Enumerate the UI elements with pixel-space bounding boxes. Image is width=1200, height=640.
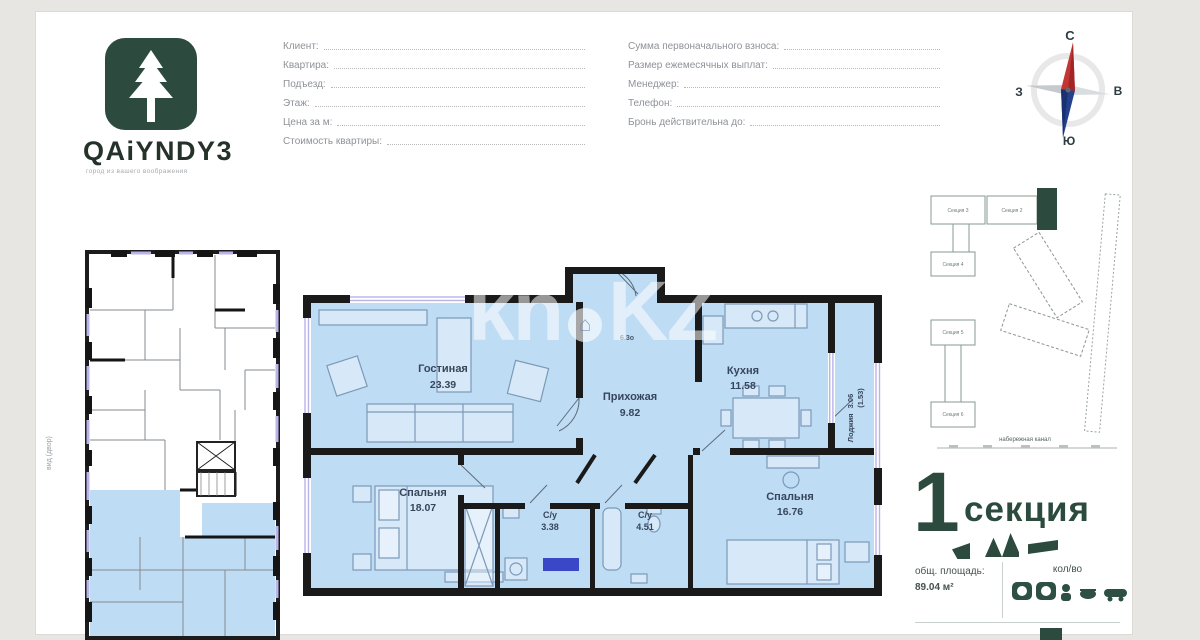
field-label: Цена за м: [283,117,332,128]
fill-in-line [684,79,940,88]
field-label: Стоимость квартиры: [283,136,382,147]
room-area-hall: 9.82 [620,407,641,419]
section-label: Секция 4 [942,262,963,268]
highlighted-section-block [1037,188,1057,230]
section-label: Секция 2 [1001,208,1022,214]
form-row: Этаж: [283,90,585,109]
floor-overview-plan [85,250,280,640]
field-label: Сумма первоначального взноса: [628,41,779,52]
form-right-column: Сумма первоначального взноса: Размер еже… [628,33,940,128]
section-label: Секция 3 [947,208,968,214]
loggia-area: 3.06 [846,394,855,409]
fill-in-line [331,79,585,88]
field-label: Подъезд: [283,79,326,90]
room-area-bath1: 3.38 [541,522,559,532]
form-row: Квартира: [283,52,585,71]
section-number: 1 [913,460,960,544]
road-line [937,445,1117,448]
field-label: Бронь действительна до: [628,117,745,128]
brand-name: QAiYNDY3 [83,136,233,167]
room-icon [1036,582,1056,600]
room-label-bath2: С/у [638,510,652,520]
compass-rose: С В З Ю [1012,26,1124,146]
section-word: секция [964,490,1090,530]
field-label: Менеджер: [628,79,679,90]
info-divider-horizontal [915,622,1120,623]
fill-in-line [324,41,585,50]
fill-in-line [784,41,940,50]
fill-in-line [337,117,585,126]
compass-north-label: С [1065,28,1075,43]
form-row: Размер ежемесячных выплат: [628,52,940,71]
form-row: Бронь действительна до: [628,109,940,128]
room-label-living: Гостиная [418,363,468,375]
fill-in-line [387,136,585,145]
blue-fixture-badge [543,558,579,571]
area-value: 89.04 м² [915,582,954,593]
room-area-bedroom1: 18.07 [410,502,436,514]
field-label: Этаж: [283,98,310,109]
form-row: Сумма первоначального взноса: [628,33,940,52]
room-label-hall: Прихожая [603,391,657,403]
room-label-bath1: С/у [543,510,557,520]
bath-icon [1080,589,1096,599]
street-side-note: вид (двор) [46,436,53,470]
form-row: Телефон: [628,90,940,109]
form-row: Подъезд: [283,71,585,90]
plan-sheet: QAiYNDY3 город из вашего воображения Кли… [0,0,1200,640]
info-divider-vertical [1002,562,1003,618]
site-plan-caption: набережная канал [999,437,1051,443]
form-row: Клиент: [283,33,585,52]
fill-in-line [315,98,585,107]
overview-core [197,442,235,496]
compass-south-label: Ю [1063,134,1075,146]
field-label: Размер ежемесячных выплат: [628,60,768,71]
field-label: Телефон: [628,98,672,109]
svg-text:Лоджия 3.06: Лоджия 3.06 [846,394,855,443]
room-label-bedroom1: Спальня [399,487,447,499]
loggia-name: Лоджия [846,413,855,442]
room-area-bedroom2: 16.76 [777,506,803,518]
fill-in-line [677,98,940,107]
fill-in-line [334,60,585,69]
apartment-floor-plan: Гостиная 23.39 Прихожая 9.82 Кухня 11.58… [295,258,895,605]
room-area-kitchen: 11.58 [730,380,756,392]
compass-needles [1021,38,1115,142]
room-area-bath2: 4.51 [636,522,654,532]
fill-in-line [773,60,940,69]
form-row: Цена за м: [283,109,585,128]
brand-tagline: город из вашего воображения [86,168,188,175]
room-label-kitchen: Кухня [727,365,759,377]
site-plan-labels: Секция 3 Секция 2 Секция 4 Секция 5 Секц… [942,208,1051,443]
compass-west-label: З [1015,85,1023,99]
section-label: Секция 5 [942,330,963,336]
room-label-bedroom2: Спальня [766,491,814,503]
quantity-label: кол/во [1015,564,1120,575]
loggia-area-reduced: (1.53) [856,388,865,408]
field-label: Квартира: [283,60,329,71]
feature-icons-row [1012,580,1130,604]
brand-logo [103,36,199,136]
field-label: Клиент: [283,41,319,52]
compass-east-label: В [1114,84,1123,98]
room-area-living: 23.39 [430,379,456,391]
section-label: Секция 6 [942,412,963,418]
form-row: Стоимость квартиры: [283,128,585,147]
person-icon [1061,584,1071,601]
form-left-column: Клиент: Квартира: Подъезд: Этаж: Цена за… [283,33,585,147]
car-icon [1104,589,1127,602]
next-section-block-cut [1040,628,1062,640]
site-plan-buildings [931,194,1120,432]
form-row: Менеджер: [628,71,940,90]
site-plan: Секция 3 Секция 2 Секция 4 Секция 5 Секц… [925,182,1125,450]
fill-in-line [750,117,940,126]
room-icon [1012,582,1032,600]
area-label: общ. площадь: [915,566,985,577]
plan-note: 6.3о [620,335,634,342]
